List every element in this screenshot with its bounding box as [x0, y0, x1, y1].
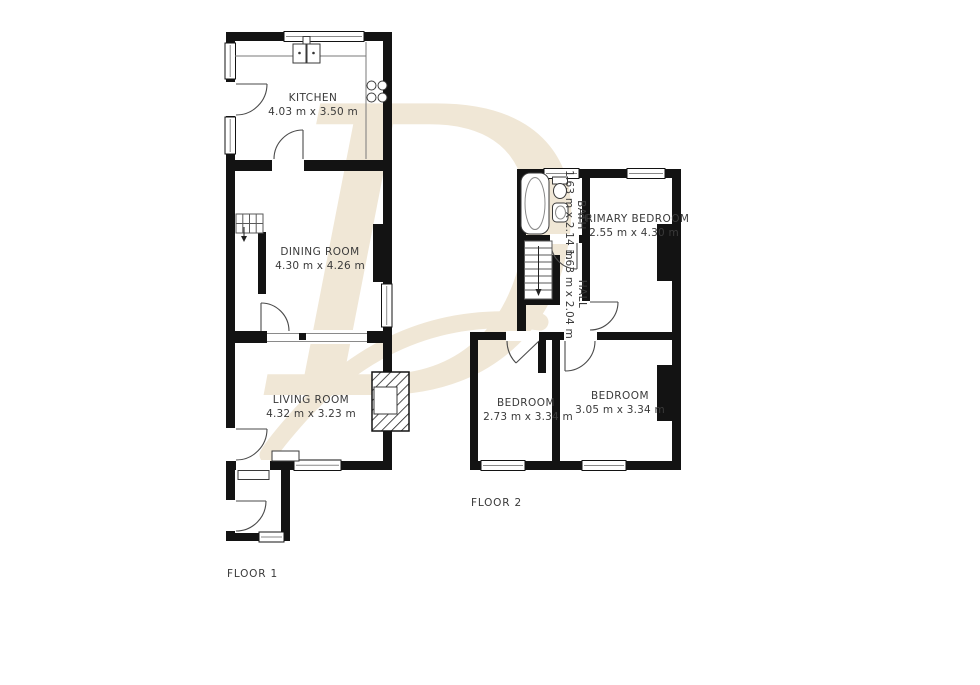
room-label-kitchen: KITCHEN [289, 92, 338, 104]
kitchen-window-top [284, 32, 364, 42]
bedroom-door-stub [538, 340, 546, 373]
dining-window-right [382, 284, 393, 327]
room-dims-bedroom-right: 3.05 m x 3.34 m [575, 404, 665, 416]
bedroom-left-window-bottom [481, 461, 525, 471]
porch-window-bottom [259, 532, 284, 542]
room-dims-living-room: 4.32 m x 3.23 m [266, 408, 356, 420]
room-label-living-room: LIVING ROOM [273, 394, 349, 406]
room-dims-bath: 1.63 m x 2.14 m [563, 170, 575, 260]
bedroom-right-window-bottom [582, 461, 626, 471]
bathtub [521, 173, 549, 234]
room-label-dining-room: DINING ROOM [280, 246, 359, 258]
porch-front-door [236, 501, 266, 531]
room-dims-kitchen: 4.03 m x 3.50 m [268, 106, 358, 118]
radiator [272, 451, 299, 461]
floorplan-page: D [0, 0, 980, 685]
room-label-primary-bedroom: PRIMARY BEDROOM [579, 213, 690, 225]
room-label-bedroom-left: BEDROOM [497, 397, 555, 409]
room-dims-hall: 1.63 m x 2.04 m [563, 249, 575, 339]
room-dims-dining-room: 4.30 m x 4.26 m [275, 260, 365, 272]
kitchen-side-door [236, 84, 267, 115]
room-dims-bedroom-left: 2.73 m x 3.34 m [483, 411, 573, 423]
room-dims-primary-bedroom: 2.55 m x 4.30 m [589, 227, 679, 239]
dining-chimney-breast [373, 224, 392, 282]
kitchen-window-left-2 [225, 117, 236, 154]
room-label-bedroom-right: BEDROOM [591, 390, 649, 402]
floor1-label: FLOOR 1 [227, 568, 278, 580]
primary-bedroom-door [590, 302, 618, 330]
stair-wall-stub [258, 232, 266, 294]
porch-step [238, 471, 269, 480]
room-label-hall: HALL [576, 280, 588, 309]
kitchen-window-left-1 [225, 43, 236, 79]
sink-tap [303, 37, 310, 45]
floorplan-canvas: D [0, 0, 980, 685]
opening-marker [299, 333, 306, 340]
living-window-bottom [294, 460, 341, 471]
floor2-label: FLOOR 2 [471, 497, 522, 509]
living-fireplace [372, 372, 409, 431]
stairs-floor2 [525, 241, 553, 299]
primary-bedroom-window-top [627, 169, 665, 179]
